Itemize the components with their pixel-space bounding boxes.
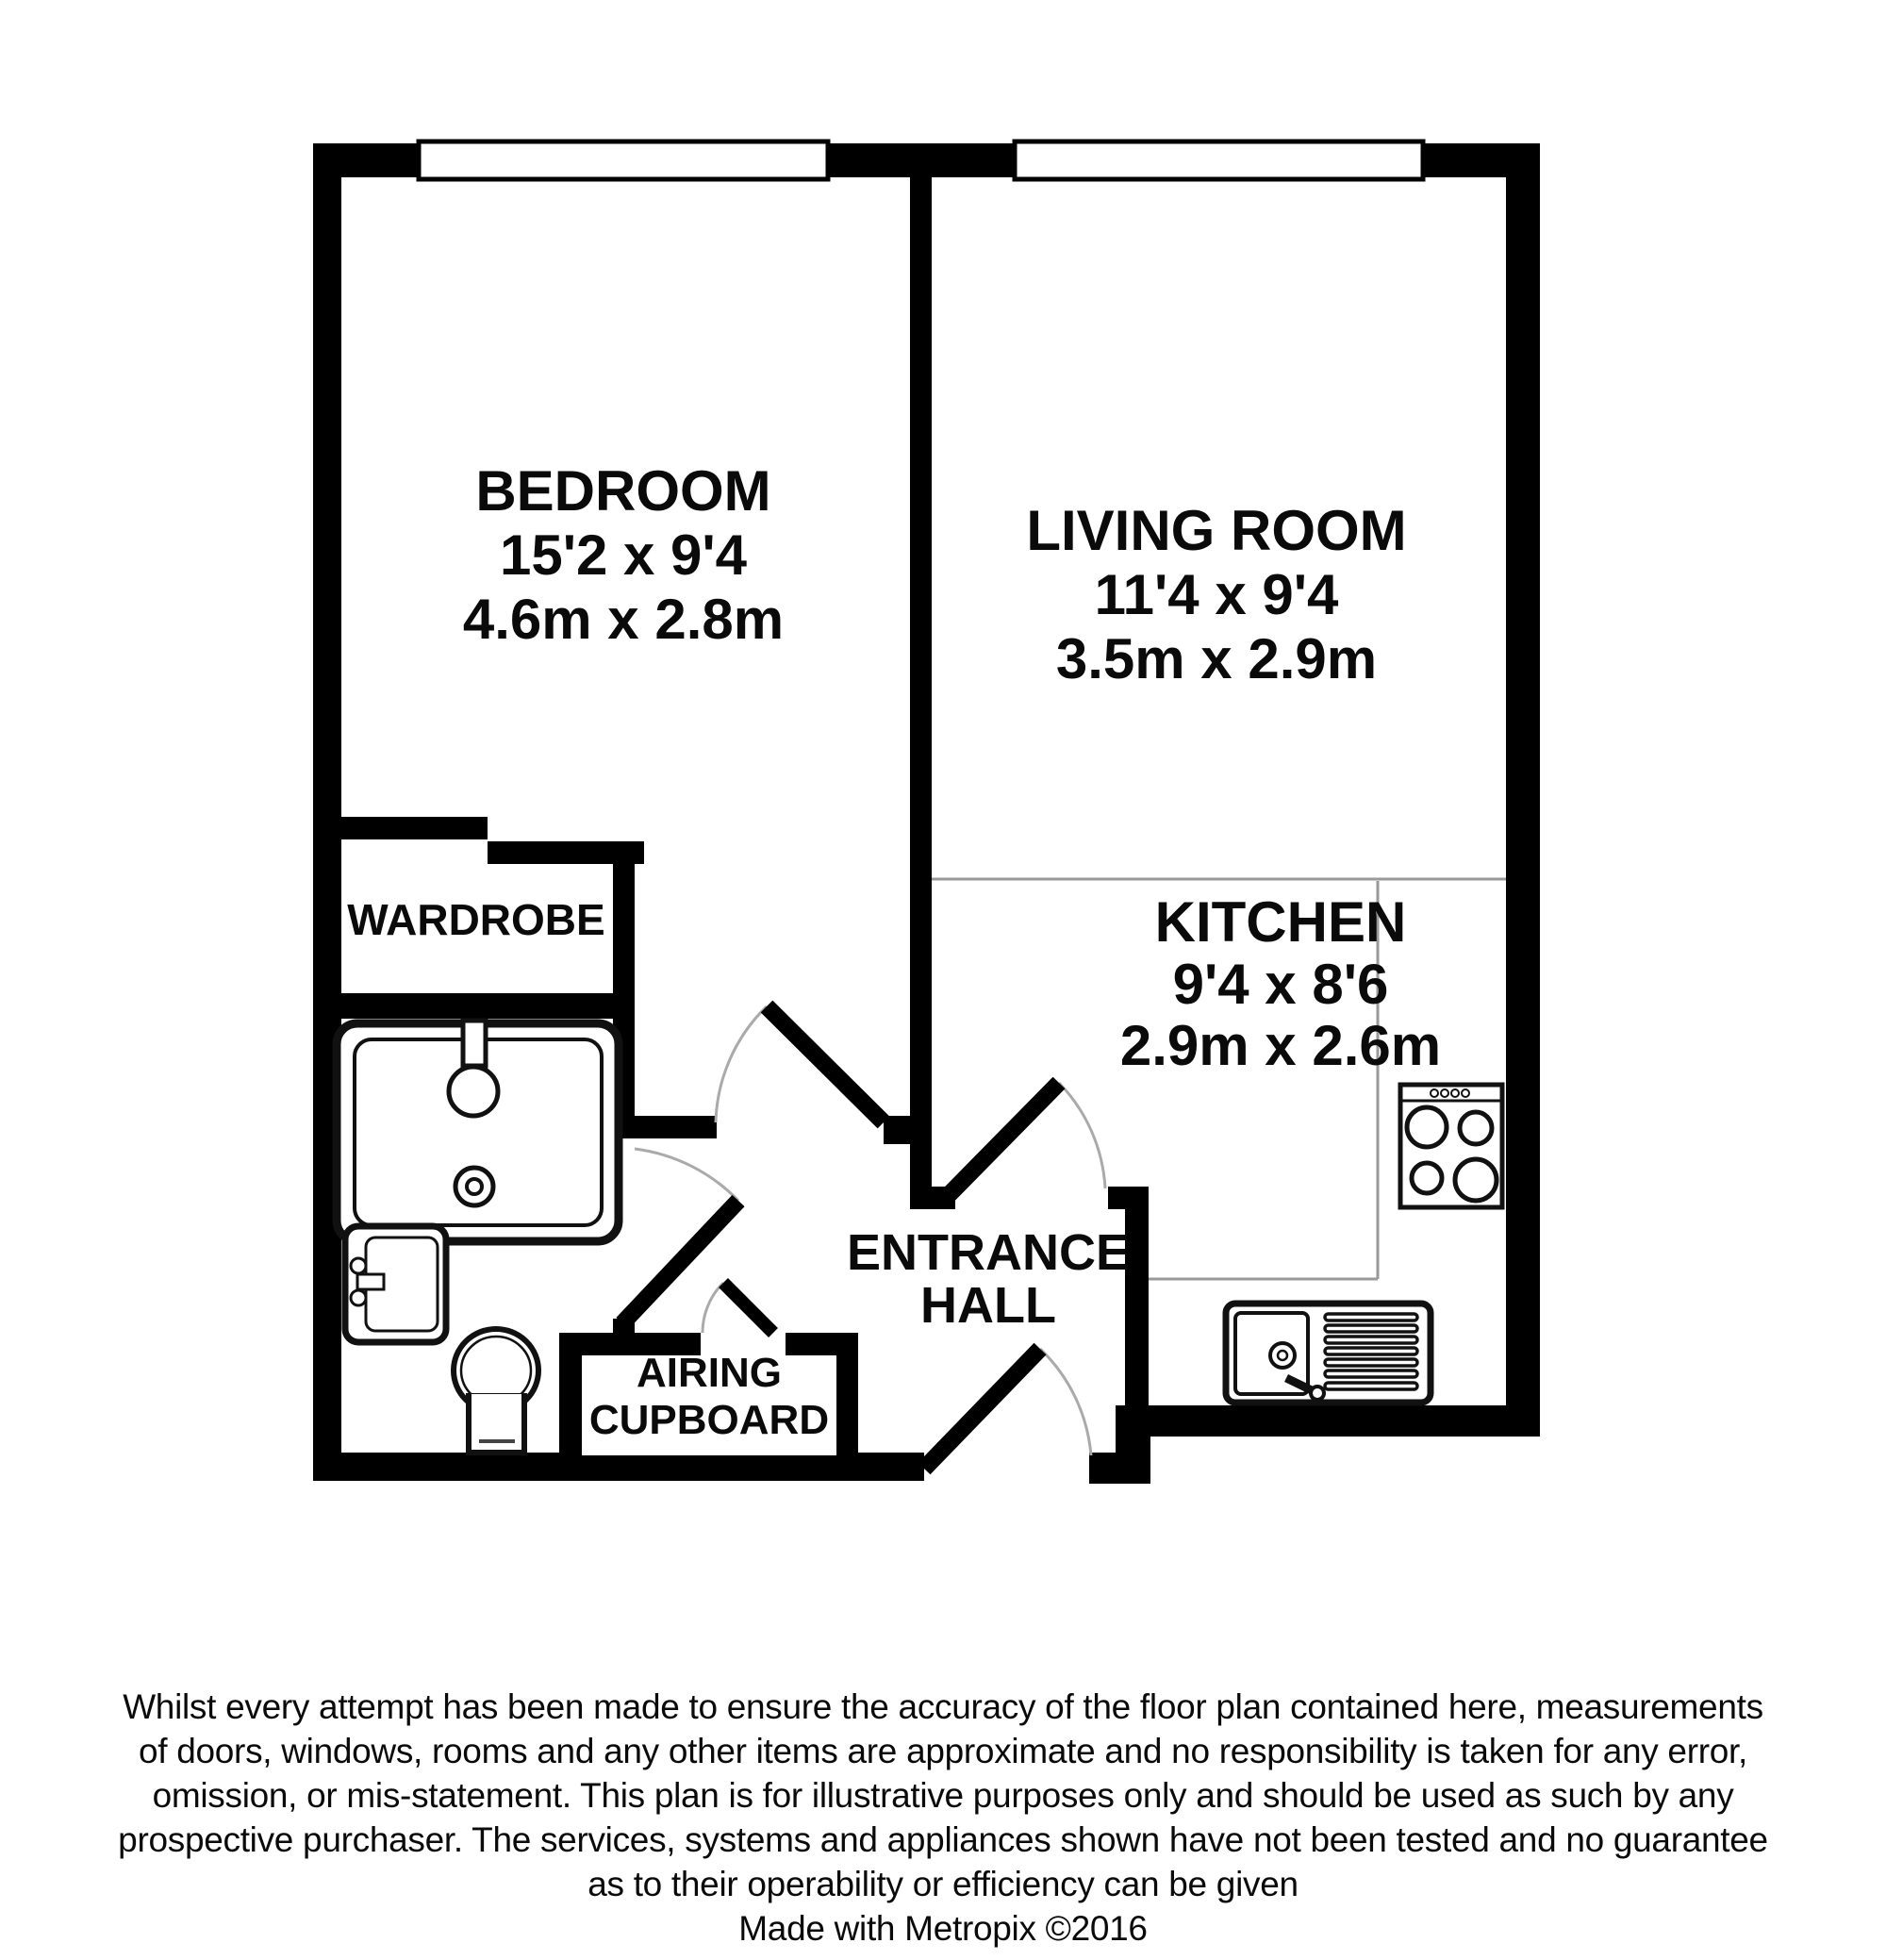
wall-kitchen-west-head: [1108, 1187, 1149, 1209]
living-room-dims-imperial: 11'4 x 9'4: [1095, 563, 1339, 626]
bathroom-door-arc: [635, 1149, 738, 1201]
kitchen-label: KITCHEN: [1155, 890, 1407, 954]
sink-drainer-bars: [1325, 1314, 1417, 1389]
drainer-bar: [1325, 1370, 1417, 1377]
wall-middle-vertical: [910, 175, 932, 1209]
bedroom-dims-imperial: 15'2 x 9'4: [500, 523, 748, 587]
entrance-hall-label-line1: ENTRANCE: [847, 1224, 1130, 1281]
metropix-credit: Made with Metropix ©2016: [0, 1906, 1886, 1951]
wall-bathroom-north: [313, 993, 635, 1019]
kitchen-dims-imperial: 9'4 x 8'6: [1173, 953, 1389, 1016]
wall-right: [1506, 143, 1540, 1437]
bedroom-dims-metric: 4.6m x 2.8m: [463, 588, 784, 651]
hob: [1400, 1085, 1502, 1207]
bathroom-door-leaf: [622, 1201, 738, 1323]
front-door-arc: [1040, 1349, 1091, 1455]
drainer-bar: [1325, 1383, 1417, 1389]
hob-burner-top-right: [1460, 1112, 1492, 1144]
disclaimer-block: Whilst every attempt has been made to en…: [0, 1685, 1886, 1951]
disclaimer-line: prospective purchaser. The services, sys…: [0, 1818, 1886, 1862]
drainer-bar: [1325, 1359, 1417, 1366]
kitchen-sink: [1226, 1304, 1431, 1403]
hob-burner-top-left: [1407, 1107, 1447, 1147]
hob-burner-bottom-left: [1412, 1163, 1442, 1193]
wall-bedroom-south-left: [313, 817, 488, 839]
bedroom-window: [419, 141, 828, 179]
drainer-bar: [1325, 1314, 1417, 1321]
hob-burner-bottom-right: [1455, 1159, 1497, 1201]
basin-tap-bottom: [351, 1290, 366, 1305]
airing-cupboard-door-arc: [703, 1283, 723, 1333]
bedroom-label: BEDROOM: [475, 459, 770, 523]
airing-cupboard-label-line2: CUPBOARD: [589, 1397, 829, 1443]
wall-hall-north-segment: [635, 1116, 717, 1138]
bedroom-door-leaf: [767, 1006, 884, 1122]
hob-knob: [1451, 1089, 1459, 1097]
living-room-dims-metric: 3.5m x 2.9m: [1056, 627, 1377, 690]
toilet: [454, 1329, 538, 1453]
living-room-label: LIVING ROOM: [1026, 499, 1406, 562]
hob-knob: [1462, 1089, 1469, 1097]
disclaimer-line: as to their operability or efficiency ca…: [0, 1862, 1886, 1906]
hob-knob: [1441, 1089, 1448, 1097]
front-door-leaf: [924, 1349, 1040, 1469]
entrance-hall-label-line2: HALL: [920, 1277, 1056, 1334]
disclaimer-line: Whilst every attempt has been made to en…: [0, 1685, 1886, 1729]
disclaimer-line: of doors, windows, rooms and any other i…: [0, 1729, 1886, 1773]
wardrobe-label: WARDROBE: [347, 895, 604, 944]
disclaimer-line: omission, or mis-statement. This plan is…: [0, 1773, 1886, 1818]
basin-tap-spout: [357, 1274, 384, 1289]
kitchen-door-leaf: [943, 1083, 1059, 1201]
hob-knob: [1431, 1089, 1438, 1097]
bedroom-door-arc: [716, 1006, 767, 1122]
bedroom-door-jamb: [884, 1116, 910, 1144]
living-room-window: [1015, 141, 1423, 179]
bathtub: [337, 1021, 619, 1241]
kitchen-door-arc: [1059, 1083, 1105, 1188]
sink-tap-head: [1311, 1387, 1324, 1400]
bathtub-tap-stem: [463, 1021, 486, 1066]
airing-cupboard-door-leaf: [723, 1283, 773, 1333]
kitchen-dims-metric: 2.9m x 2.6m: [1120, 1014, 1441, 1077]
floorplan-drawing: BEDROOM 15'2 x 9'4 4.6m x 2.8m LIVING RO…: [0, 0, 1886, 1679]
basin-tap-top: [351, 1258, 366, 1273]
bathtub-drain-inner: [467, 1179, 482, 1194]
drainer-bar: [1325, 1337, 1417, 1343]
drainer-bar: [1325, 1348, 1417, 1354]
bathroom-basin: [345, 1226, 446, 1342]
toilet-base-fill: [471, 1394, 521, 1422]
airing-cupboard-label-line1: AIRING: [637, 1350, 782, 1396]
front-door-jamb: [1089, 1453, 1150, 1484]
wall-left: [313, 143, 341, 1481]
sink-drain-inner: [1278, 1351, 1287, 1360]
drainer-bar: [1325, 1325, 1417, 1332]
wall-bottom-kitchen: [1149, 1405, 1540, 1437]
floorplan-page: BEDROOM 15'2 x 9'4 4.6m x 2.8m LIVING RO…: [0, 0, 1886, 1960]
bathtub-tap-head: [449, 1067, 498, 1116]
